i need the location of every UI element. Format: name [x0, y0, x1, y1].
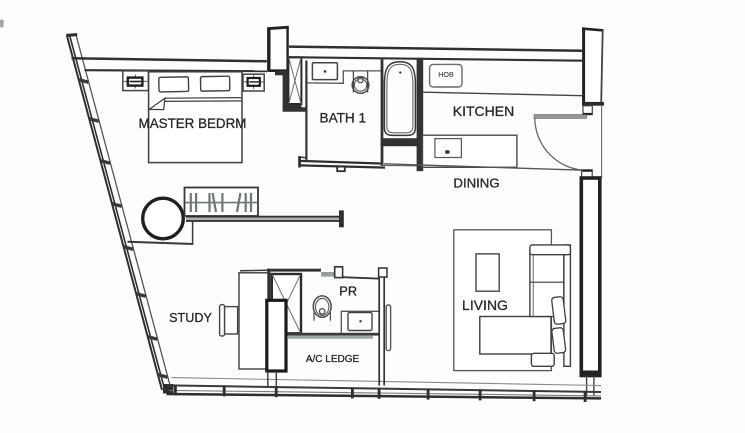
svg-text:DINING: DINING: [453, 176, 499, 191]
svg-text:HOB: HOB: [438, 70, 454, 79]
svg-text:LIVING: LIVING: [462, 297, 508, 313]
svg-text:MASTER BEDRM: MASTER BEDRM: [139, 116, 247, 131]
svg-text:BATH 1: BATH 1: [320, 111, 367, 126]
svg-text:PR: PR: [339, 283, 357, 298]
svg-text:KITCHEN: KITCHEN: [453, 103, 514, 119]
svg-text:STUDY: STUDY: [169, 311, 212, 325]
svg-text:A/C LEDGE: A/C LEDGE: [306, 354, 360, 365]
